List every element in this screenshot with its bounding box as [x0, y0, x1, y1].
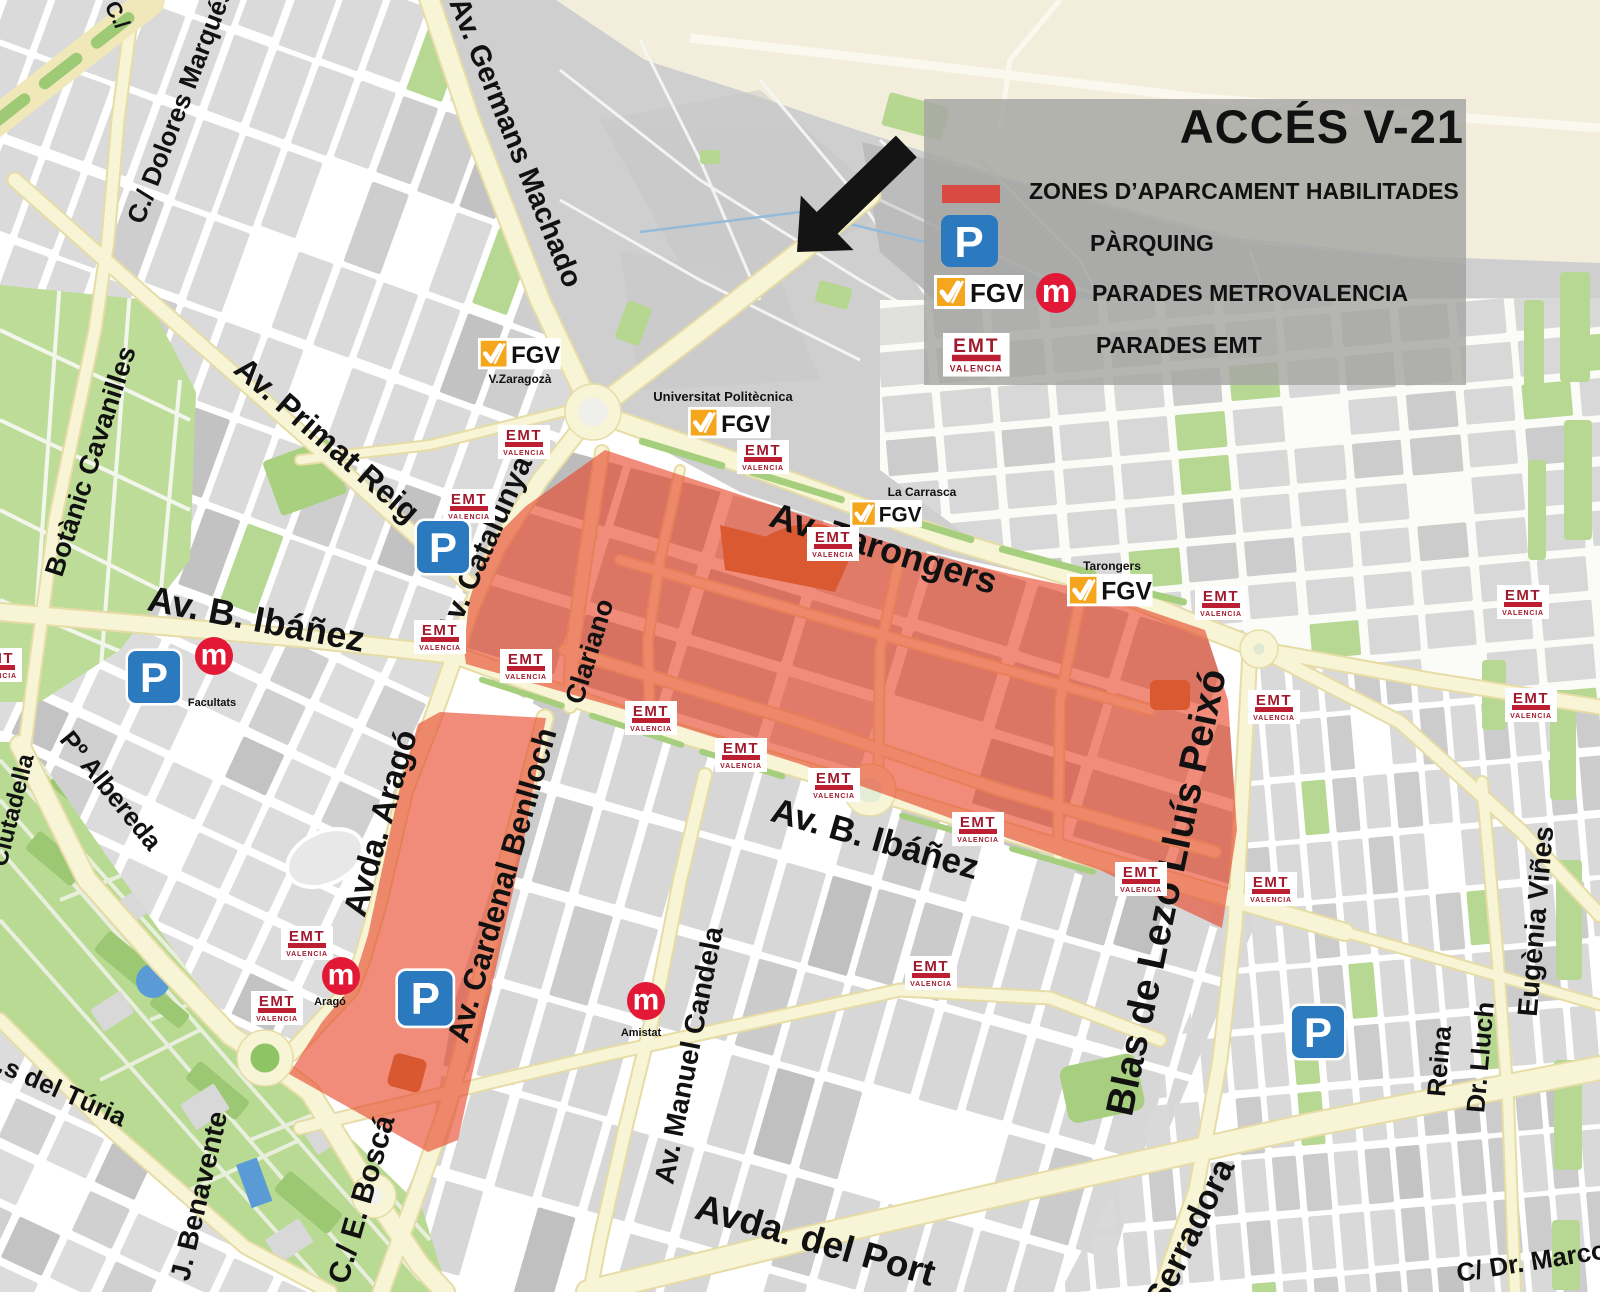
svg-text:EMT: EMT: [745, 442, 781, 459]
svg-text:EMT: EMT: [815, 529, 851, 546]
svg-text:EMT: EMT: [506, 427, 542, 444]
svg-text:EMT: EMT: [723, 740, 759, 757]
svg-text:FGV: FGV: [970, 278, 1024, 308]
svg-text:Aragó: Aragó: [314, 996, 346, 1008]
svg-text:EMT: EMT: [1203, 588, 1239, 605]
svg-text:EMT: EMT: [960, 814, 996, 831]
svg-text:EMT: EMT: [1505, 587, 1541, 604]
svg-text:VALENCIA: VALENCIA: [286, 951, 328, 958]
svg-text:EMT: EMT: [1253, 874, 1289, 891]
svg-text:FGV: FGV: [511, 342, 560, 369]
svg-text:FGV: FGV: [721, 411, 770, 438]
svg-text:VALENCIA: VALENCIA: [503, 450, 545, 457]
svg-text:PARADES METROVALENCIA: PARADES METROVALENCIA: [1092, 280, 1408, 306]
svg-text:EMT: EMT: [1513, 690, 1549, 707]
svg-text:EMT: EMT: [816, 770, 852, 787]
svg-text:PARADES EMT: PARADES EMT: [1096, 332, 1262, 358]
svg-text:EMT: EMT: [913, 958, 949, 975]
svg-text:VALENCIA: VALENCIA: [505, 674, 547, 681]
svg-text:V.Zaragozà: V.Zaragozà: [489, 372, 552, 386]
svg-text:EMT: EMT: [422, 622, 458, 639]
svg-text:P: P: [411, 975, 440, 1024]
svg-text:EMT: EMT: [289, 928, 325, 945]
svg-text:VALENCIA: VALENCIA: [419, 645, 461, 652]
svg-text:ACCÉS V-21: ACCÉS V-21: [1180, 100, 1464, 153]
svg-text:EMT: EMT: [259, 993, 295, 1010]
svg-text:ZONES D’APARCAMENT HABILITADES: ZONES D’APARCAMENT HABILITADES: [1029, 178, 1459, 204]
svg-text:Reina: Reina: [1421, 1024, 1457, 1098]
svg-text:EMT: EMT: [1123, 864, 1159, 881]
svg-text:VALENCIA: VALENCIA: [910, 981, 952, 988]
svg-text:EMT: EMT: [953, 336, 999, 357]
svg-text:m: m: [201, 639, 228, 672]
svg-text:m: m: [633, 984, 660, 1017]
svg-text:VALENCIA: VALENCIA: [1502, 610, 1544, 617]
svg-text:EMT: EMT: [508, 651, 544, 668]
svg-text:EMT: EMT: [633, 703, 669, 720]
svg-text:EMT: EMT: [0, 650, 14, 667]
svg-text:EMT: EMT: [451, 491, 487, 508]
svg-text:m: m: [328, 959, 355, 992]
svg-text:VALENCIA: VALENCIA: [742, 465, 784, 472]
svg-text:m: m: [1042, 273, 1070, 309]
svg-text:VALENCIA: VALENCIA: [1510, 713, 1552, 720]
svg-text:FGV: FGV: [1101, 579, 1152, 606]
svg-text:VALENCIA: VALENCIA: [813, 793, 855, 800]
svg-text:VALENCIA: VALENCIA: [630, 726, 672, 733]
svg-text:VALENCIA: VALENCIA: [1250, 897, 1292, 904]
svg-text:P: P: [1304, 1009, 1332, 1056]
svg-text:FGV: FGV: [879, 504, 922, 527]
svg-text:VALENCIA: VALENCIA: [0, 673, 17, 680]
svg-text:VALENCIA: VALENCIA: [957, 837, 999, 844]
svg-text:Facultats: Facultats: [188, 697, 236, 709]
svg-text:VALENCIA: VALENCIA: [720, 763, 762, 770]
svg-text:Tarongers: Tarongers: [1083, 559, 1141, 573]
svg-text:Amistat: Amistat: [621, 1027, 662, 1039]
svg-text:VALENCIA: VALENCIA: [1253, 715, 1295, 722]
svg-text:VALENCIA: VALENCIA: [256, 1016, 298, 1023]
svg-text:VALENCIA: VALENCIA: [812, 552, 854, 559]
svg-text:P: P: [954, 218, 983, 267]
svg-text:La Carrasca: La Carrasca: [888, 485, 957, 499]
svg-text:VALENCIA: VALENCIA: [950, 363, 1003, 373]
svg-text:P: P: [429, 524, 457, 571]
svg-text:Universitat Politècnica: Universitat Politècnica: [653, 389, 793, 404]
svg-text:VALENCIA: VALENCIA: [1200, 611, 1242, 618]
svg-text:EMT: EMT: [1256, 692, 1292, 709]
svg-text:VALENCIA: VALENCIA: [1120, 887, 1162, 894]
svg-text:P: P: [140, 654, 168, 701]
svg-text:PÀRQUING: PÀRQUING: [1090, 229, 1214, 256]
